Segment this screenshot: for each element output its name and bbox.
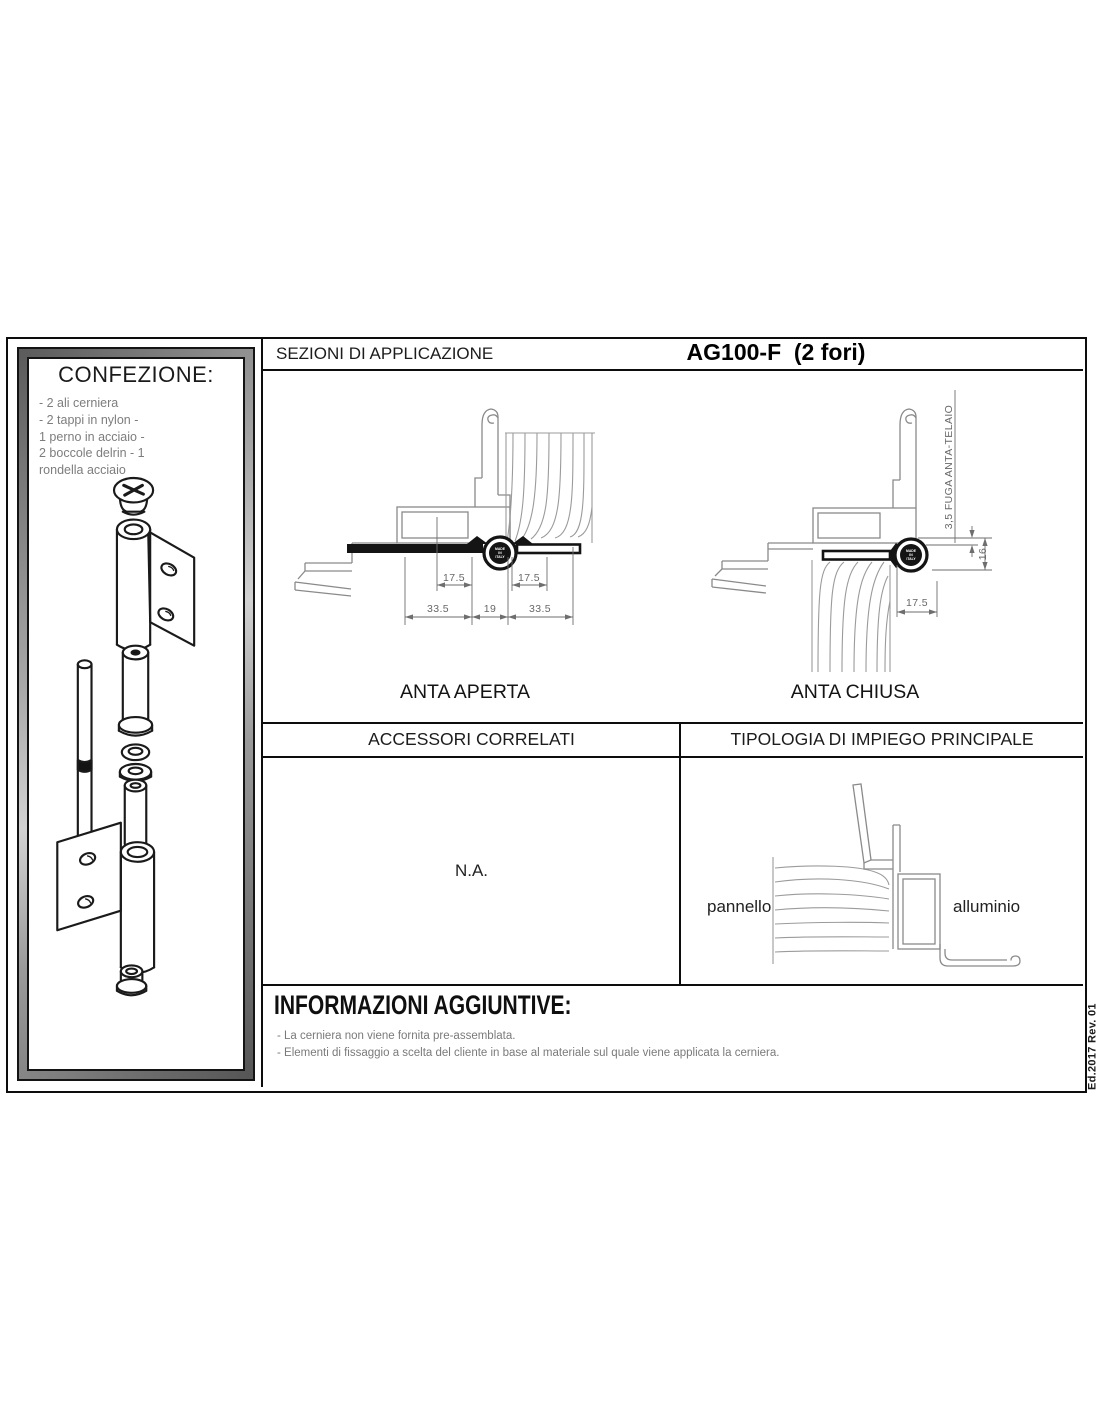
informazioni-note: - Elementi di fissaggio a scelta del cli…	[277, 1047, 779, 1059]
nylon-cap-part	[117, 965, 146, 995]
accessori-value: N.A.	[264, 758, 679, 984]
dim-17-5: 17.5	[906, 597, 928, 609]
confezione-item: - 2 tappi in nylon -	[39, 412, 229, 429]
hinge-cross-section: MADE IN ITALY	[823, 539, 927, 571]
aluminum-profile	[295, 409, 510, 596]
informazioni-section: INFORMAZIONI AGGIUNTIVE: - La cerniera n…	[264, 986, 1083, 1088]
fuga-label: 3,5 FUGA ANTA-TELAIO	[943, 405, 955, 530]
aluminum-profile	[853, 784, 1020, 966]
pannello-label: pannello	[707, 897, 771, 916]
dim-gap: 19	[484, 603, 496, 615]
confezione-panel: CONFEZIONE: - 2 ali cerniera - 2 tappi i…	[17, 347, 255, 1081]
revision-label: Ed.2017 Rev. 01	[1085, 953, 1100, 1090]
alluminio-label: alluminio	[953, 897, 1020, 916]
confezione-title: CONFEZIONE:	[29, 362, 243, 388]
screw-part	[114, 478, 153, 515]
lower-hinge-wing	[57, 823, 154, 973]
wood-panel	[505, 433, 595, 543]
confezione-content: CONFEZIONE: - 2 ali cerniera - 2 tappi i…	[27, 357, 245, 1071]
aluminum-profile	[712, 409, 916, 593]
upper-hinge-wing	[117, 520, 194, 651]
informazioni-title: INFORMAZIONI AGGIUNTIVE:	[274, 990, 572, 1021]
bushings-stack	[119, 646, 152, 844]
dim-left-offset: 17.5	[443, 572, 465, 584]
section-title: SEZIONI DI APPLICAZIONE	[276, 344, 493, 364]
tipologia-header: TIPOLOGIA DI IMPIEGO PRINCIPALE	[681, 722, 1083, 756]
dim-left-width: 33.5	[427, 603, 449, 615]
tipologia-cell: pannello alluminio	[681, 758, 1083, 984]
confezione-item: 1 perno in acciaio -	[39, 429, 229, 446]
application-sections: MADE IN ITALY 17.5 17.5 33.5 19 33.5 ANT…	[263, 371, 1083, 722]
dim-right-width: 33.5	[529, 603, 551, 615]
header-row: SEZIONI DI APPLICAZIONE AG100-F (2 fori)	[264, 339, 1083, 369]
anta-aperta-label: ANTA APERTA	[400, 681, 530, 703]
tipologia-drawing: pannello alluminio	[697, 772, 1077, 982]
datasheet-page: CONFEZIONE: - 2 ali cerniera - 2 tappi i…	[0, 0, 1100, 1422]
confezione-item: - 2 ali cerniera	[39, 395, 229, 412]
wood-panel	[773, 857, 889, 964]
anta-aperta-drawing: MADE IN ITALY 17.5 17.5 33.5 19 33.5 ANT…	[285, 385, 685, 715]
steel-pin-part	[78, 660, 92, 846]
anta-chiusa-drawing: MADE IN ITALY 3,5 FUGA ANTA-TELAIO 16 17…	[700, 385, 1010, 715]
product-code: AG100-F (2 fori)	[616, 339, 936, 366]
knuckle-text: ITALY	[906, 557, 916, 561]
accessori-header: ACCESSORI CORRELATI	[264, 722, 679, 756]
dim-right-offset: 17.5	[518, 572, 540, 584]
hinge-cross-section: MADE IN ITALY	[347, 536, 580, 569]
wood-panel	[812, 560, 890, 672]
exploded-hinge-drawing	[26, 454, 246, 1074]
knuckle-text: ITALY	[495, 555, 505, 559]
anta-chiusa-label: ANTA CHIUSA	[791, 681, 920, 703]
dim-16: 16	[977, 548, 989, 560]
informazioni-note: - La cerniera non viene fornita pre-asse…	[277, 1030, 515, 1042]
